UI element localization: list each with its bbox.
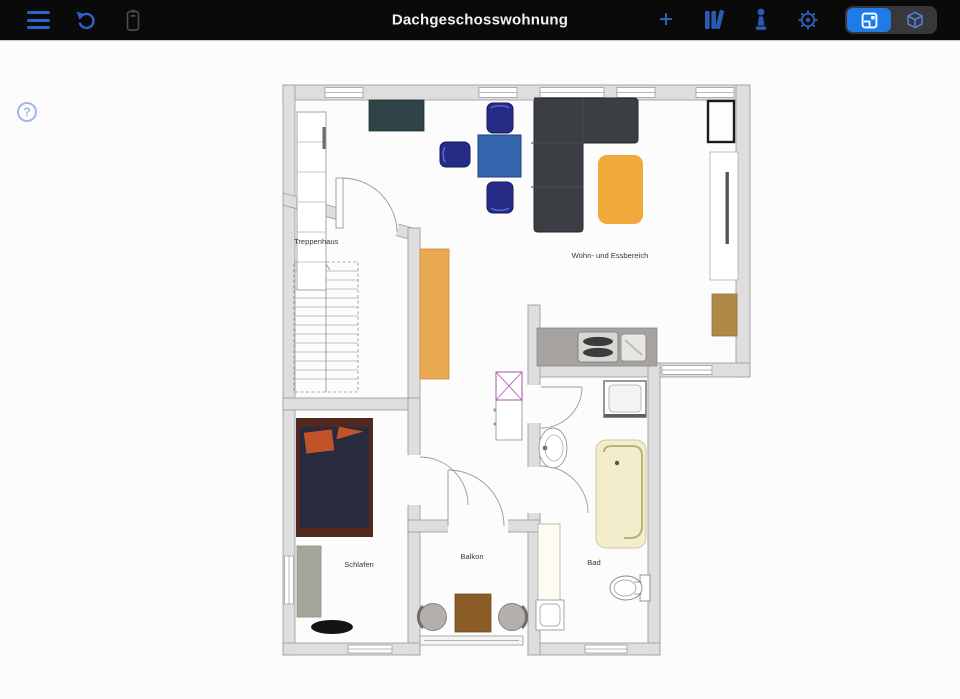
pillow-left: [304, 429, 334, 453]
washing-machine[interactable]: [493, 372, 522, 440]
shower[interactable]: [604, 381, 646, 417]
room-label-schlafen: Schlafen: [344, 560, 374, 569]
bedroom-door-arc: [420, 457, 468, 505]
undo-icon[interactable]: [73, 8, 98, 32]
device-battery-icon[interactable]: [124, 9, 142, 32]
floorplan-drawing: Treppenhaus Wohn- und Essbereich Schlafe…: [0, 0, 960, 699]
bath-cabinet[interactable]: [538, 524, 560, 601]
menu-icon[interactable]: [27, 11, 50, 29]
bed[interactable]: [296, 418, 373, 537]
bath-sink[interactable]: [536, 600, 564, 630]
catalog-library-icon[interactable]: [701, 8, 728, 32]
balcony-door-arc: [448, 470, 504, 526]
sideboard[interactable]: [369, 100, 424, 131]
entrance-door-leaf[interactable]: [336, 178, 343, 228]
person-figure-icon[interactable]: [751, 7, 771, 33]
room-label-bad: Bad: [587, 558, 601, 567]
floor-cushion[interactable]: [311, 620, 353, 634]
room-label-balkon: Balkon: [460, 552, 483, 561]
view-2d-floorplan-button[interactable]: [847, 8, 891, 32]
toilet[interactable]: [610, 575, 650, 601]
bath-lower-door-arc: [541, 466, 588, 513]
balcony-chair-right[interactable]: [499, 604, 527, 631]
living-room-furniture: [297, 98, 738, 379]
floorplan-2d-icon: [861, 12, 878, 29]
settings-gear-icon[interactable]: [797, 9, 819, 31]
rug[interactable]: [598, 155, 643, 224]
kitchen-counter[interactable]: [537, 328, 657, 366]
wood-cabinet[interactable]: [712, 294, 737, 336]
balcony-railing: [420, 636, 523, 645]
cooktop[interactable]: [578, 332, 618, 362]
dining-table[interactable]: [478, 135, 521, 177]
view-3d-button[interactable]: [893, 8, 937, 32]
room-label-treppenhaus: Treppenhaus: [294, 237, 339, 246]
washbasin[interactable]: [539, 428, 567, 468]
bathtub[interactable]: [596, 440, 646, 548]
bathroom-fixtures: [536, 381, 650, 630]
cube-3d-icon: [906, 11, 924, 29]
dining-chair-left[interactable]: [440, 142, 470, 167]
tall-wardrobe[interactable]: [420, 249, 449, 379]
balcony-table[interactable]: [455, 594, 491, 632]
bedroom-wardrobe[interactable]: [297, 546, 321, 617]
top-toolbar: Dachgeschosswohnung +: [0, 0, 960, 41]
balcony-furniture: [418, 594, 527, 645]
shelf-unit[interactable]: [297, 112, 326, 290]
add-icon[interactable]: +: [652, 4, 680, 36]
balcony-chair-left[interactable]: [418, 604, 446, 631]
room-label-wohnen: Wohn- und Essbereich: [572, 251, 649, 260]
document-title: Dachgeschosswohnung: [392, 12, 568, 29]
tv[interactable]: [708, 101, 734, 142]
shelf-handle: [323, 127, 326, 149]
bath-door-arc: [541, 387, 582, 428]
view-mode-segmented-control: [845, 6, 937, 34]
tv-lowboard[interactable]: [710, 152, 738, 280]
